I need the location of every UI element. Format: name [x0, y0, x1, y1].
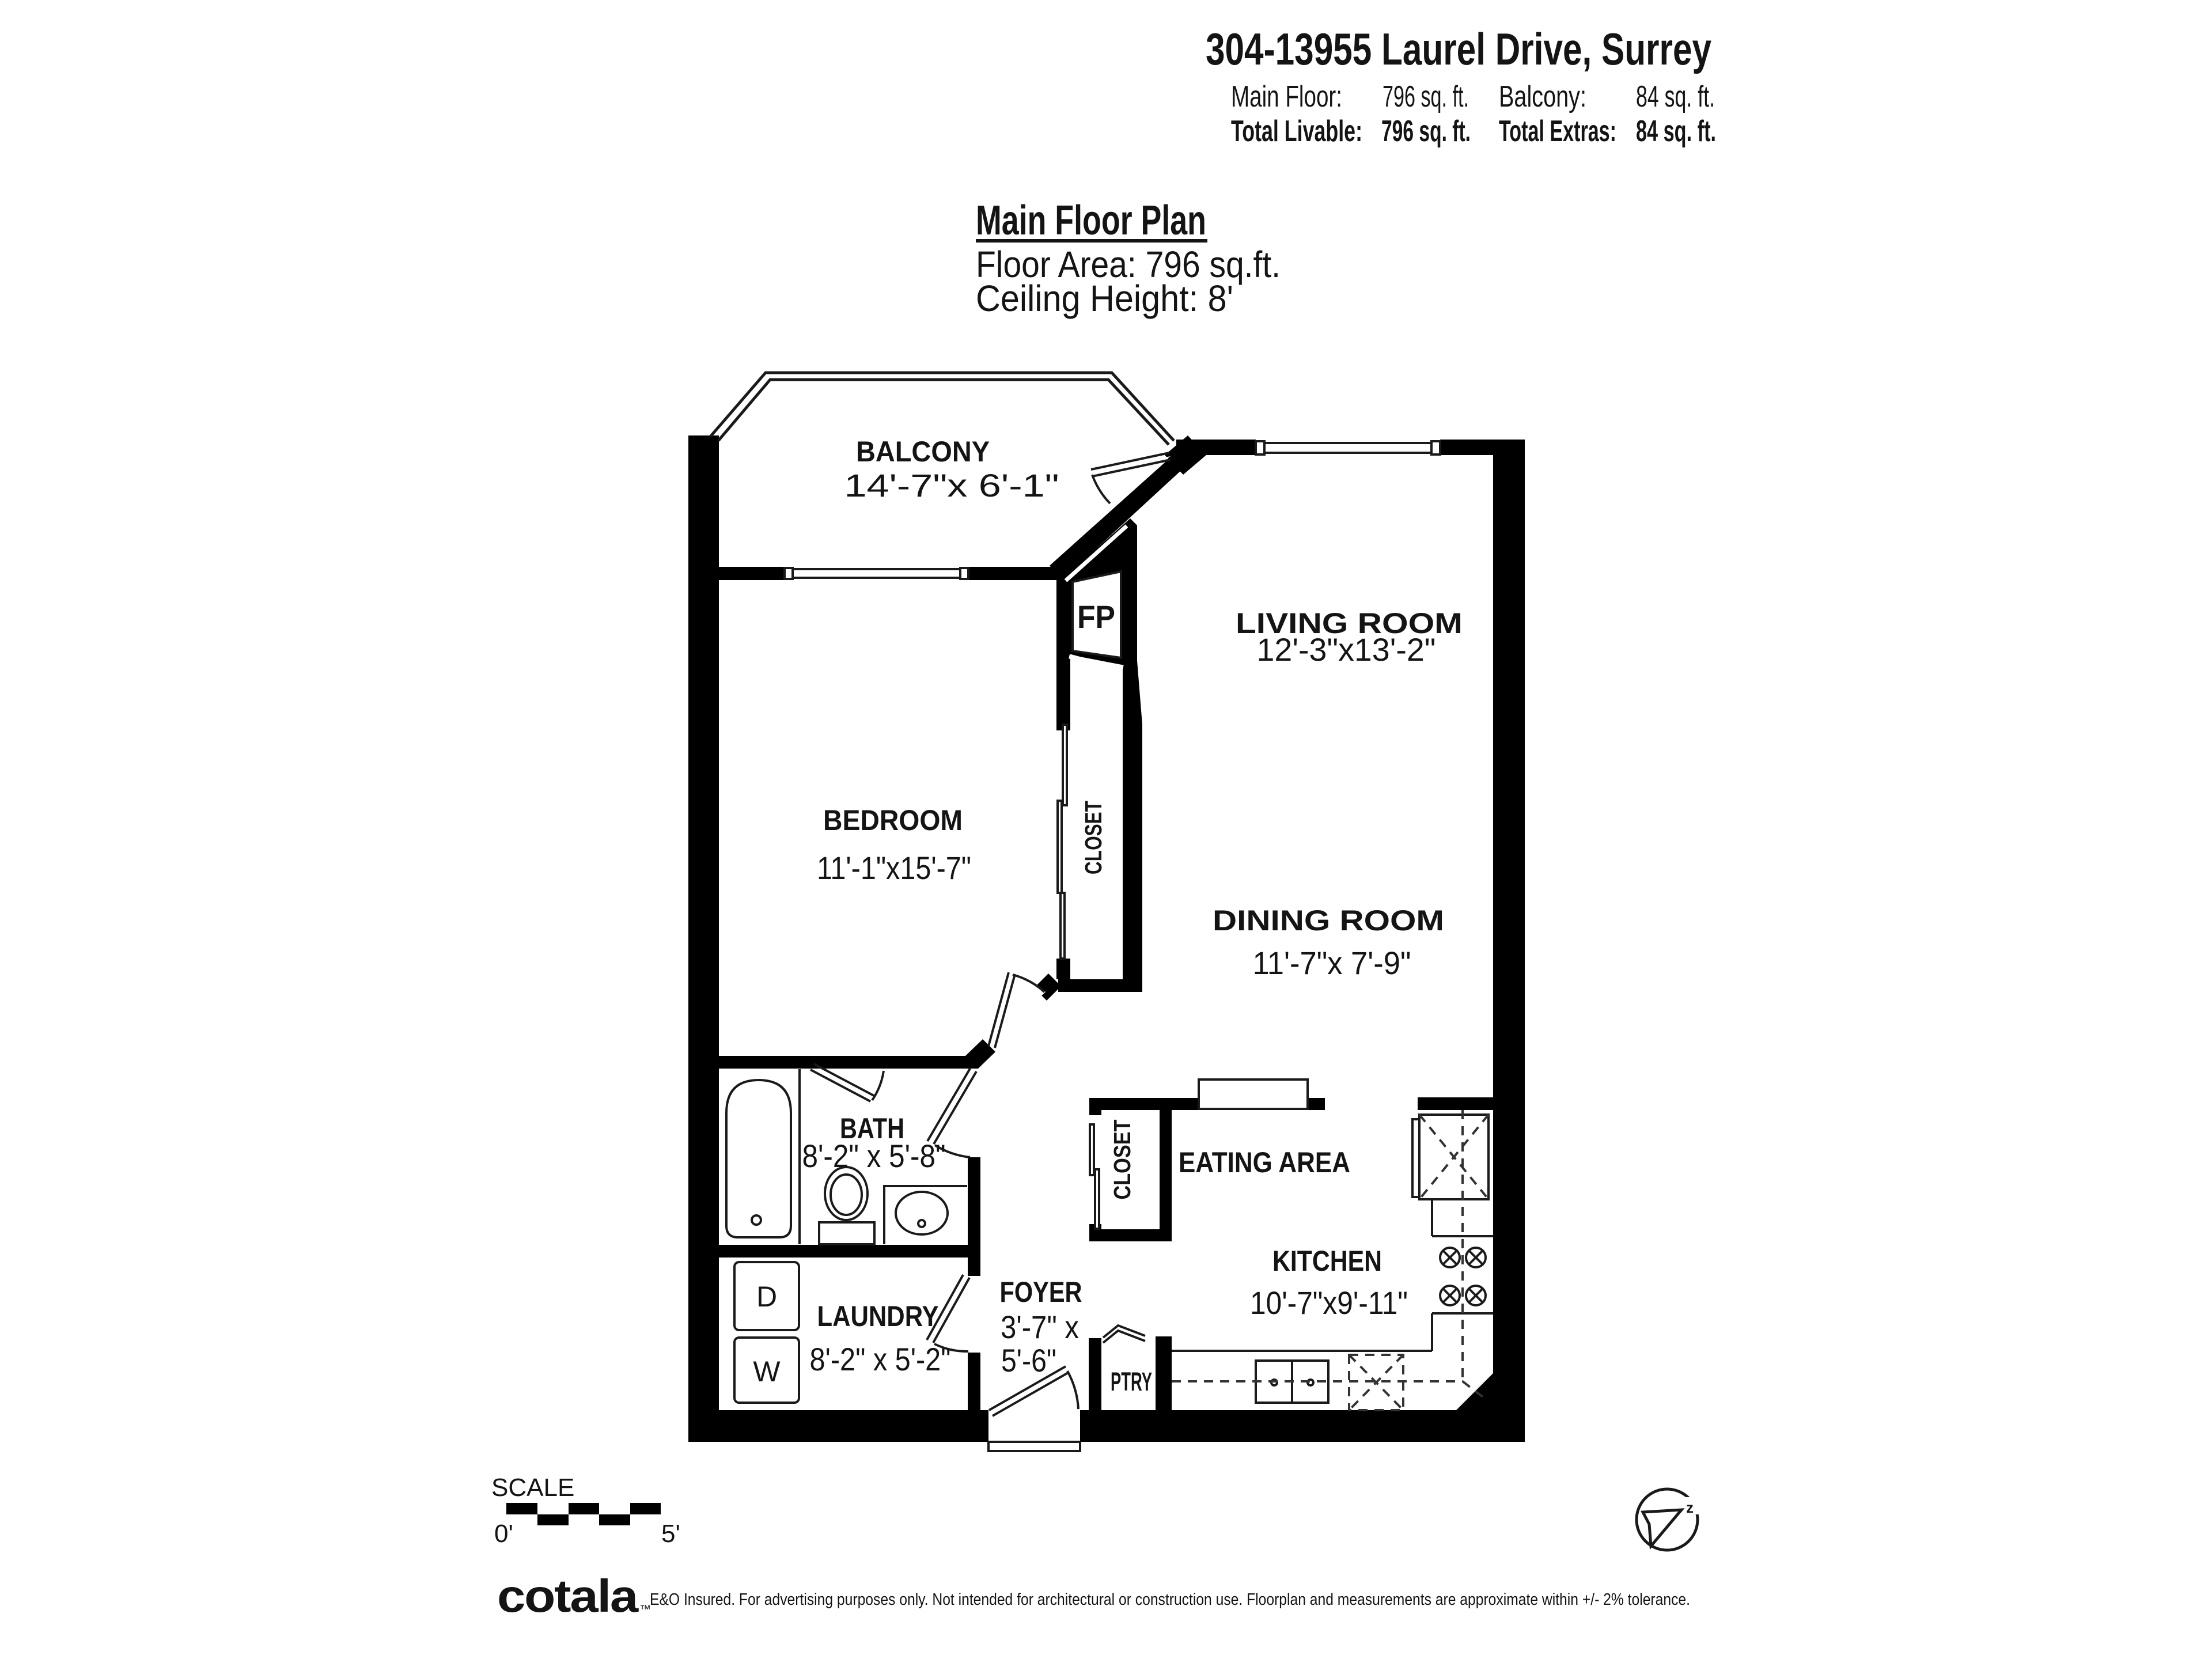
- svg-text:11'-1"x15'-7": 11'-1"x15'-7": [817, 850, 971, 886]
- svg-text:Main Floor:: Main Floor:: [1231, 80, 1342, 113]
- svg-text:KITCHEN: KITCHEN: [1272, 1245, 1382, 1277]
- svg-text:cotala: cotala: [497, 1570, 639, 1622]
- svg-text:11'-7"x 7'-9": 11'-7"x 7'-9": [1253, 945, 1411, 981]
- svg-text:BEDROOM: BEDROOM: [823, 804, 963, 836]
- svg-text:8'-2" x 5'-2": 8'-2" x 5'-2": [810, 1341, 951, 1377]
- svg-text:Ceiling Height: 8': Ceiling Height: 8': [976, 278, 1233, 319]
- svg-text:SCALE: SCALE: [491, 1474, 574, 1502]
- svg-text:BALCONY: BALCONY: [856, 435, 990, 468]
- svg-text:D: D: [756, 1281, 777, 1313]
- svg-text:5'-6": 5'-6": [1001, 1342, 1056, 1378]
- svg-text:12'-3"x13'-2": 12'-3"x13'-2": [1257, 631, 1436, 668]
- svg-text:E&O Insured. For advertising p: E&O Insured. For advertising purposes on…: [650, 1590, 1690, 1609]
- svg-text:Balcony:: Balcony:: [1499, 80, 1586, 113]
- svg-text:™: ™: [639, 1603, 651, 1616]
- svg-text:84 sq. ft.: 84 sq. ft.: [1636, 80, 1715, 113]
- svg-text:FOYER: FOYER: [1000, 1276, 1082, 1308]
- svg-text:0': 0': [494, 1520, 513, 1548]
- svg-text:Total Extras:: Total Extras:: [1499, 115, 1616, 148]
- svg-text:8'-2" x 5'-8": 8'-2" x 5'-8": [802, 1138, 946, 1174]
- svg-text:84 sq. ft.: 84 sq. ft.: [1636, 115, 1716, 148]
- svg-text:FP: FP: [1077, 599, 1115, 635]
- svg-text:10'-7"x9'-11": 10'-7"x9'-11": [1250, 1285, 1408, 1321]
- svg-text:3'-7" x: 3'-7" x: [1001, 1309, 1079, 1345]
- svg-text:304-13955 Laurel Drive, Surrey: 304-13955 Laurel Drive, Surrey: [1206, 24, 1711, 74]
- svg-text:14'-7"x 6'-1": 14'-7"x 6'-1": [844, 467, 1059, 503]
- svg-text:CLOSET: CLOSET: [1109, 1120, 1135, 1200]
- svg-text:W: W: [753, 1355, 781, 1388]
- svg-text:796 sq. ft.: 796 sq. ft.: [1382, 80, 1469, 113]
- svg-text:DINING ROOM: DINING ROOM: [1213, 904, 1444, 937]
- svg-text:Main Floor Plan: Main Floor Plan: [976, 198, 1206, 244]
- svg-text:PTRY: PTRY: [1111, 1367, 1152, 1396]
- svg-text:z: z: [1686, 1499, 1694, 1516]
- svg-text:EATING AREA: EATING AREA: [1179, 1146, 1350, 1179]
- svg-text:5': 5': [661, 1520, 680, 1548]
- svg-text:Total Livable:: Total Livable:: [1231, 115, 1362, 148]
- svg-text:CLOSET: CLOSET: [1080, 801, 1107, 874]
- svg-text:LAUNDRY: LAUNDRY: [817, 1300, 939, 1332]
- svg-text:796 sq. ft.: 796 sq. ft.: [1381, 115, 1471, 148]
